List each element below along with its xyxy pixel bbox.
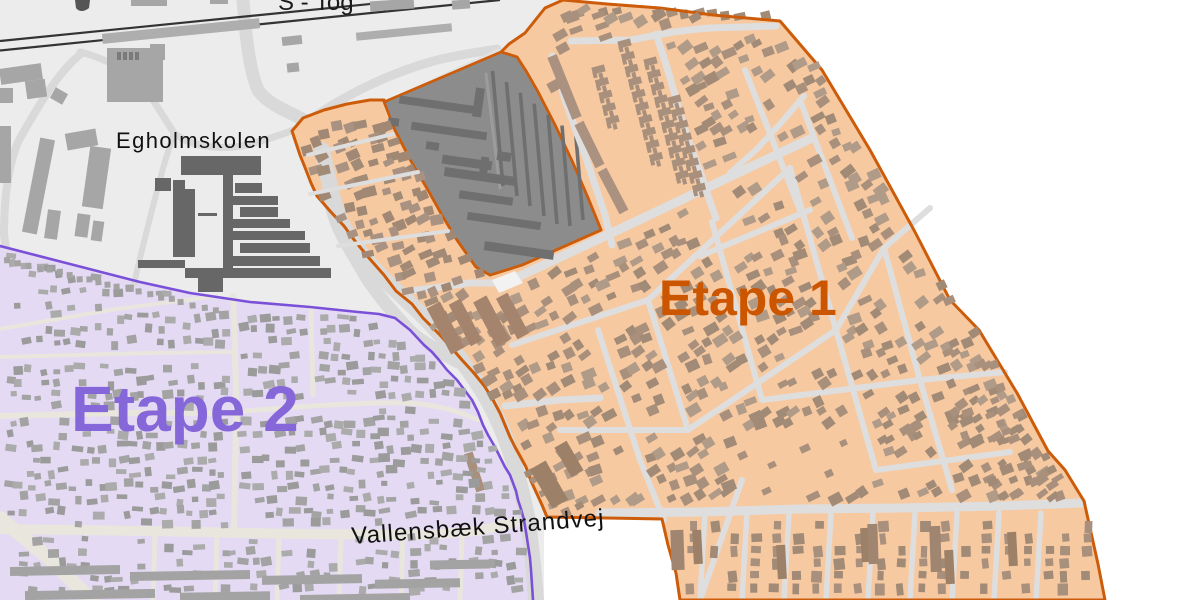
svg-text:Etape 1: Etape 1 [659, 270, 837, 326]
svg-text:S - Tog: S - Tog [278, 0, 354, 16]
svg-text:Egholmskolen: Egholmskolen [116, 128, 271, 153]
svg-text:Etape 2: Etape 2 [71, 373, 299, 445]
